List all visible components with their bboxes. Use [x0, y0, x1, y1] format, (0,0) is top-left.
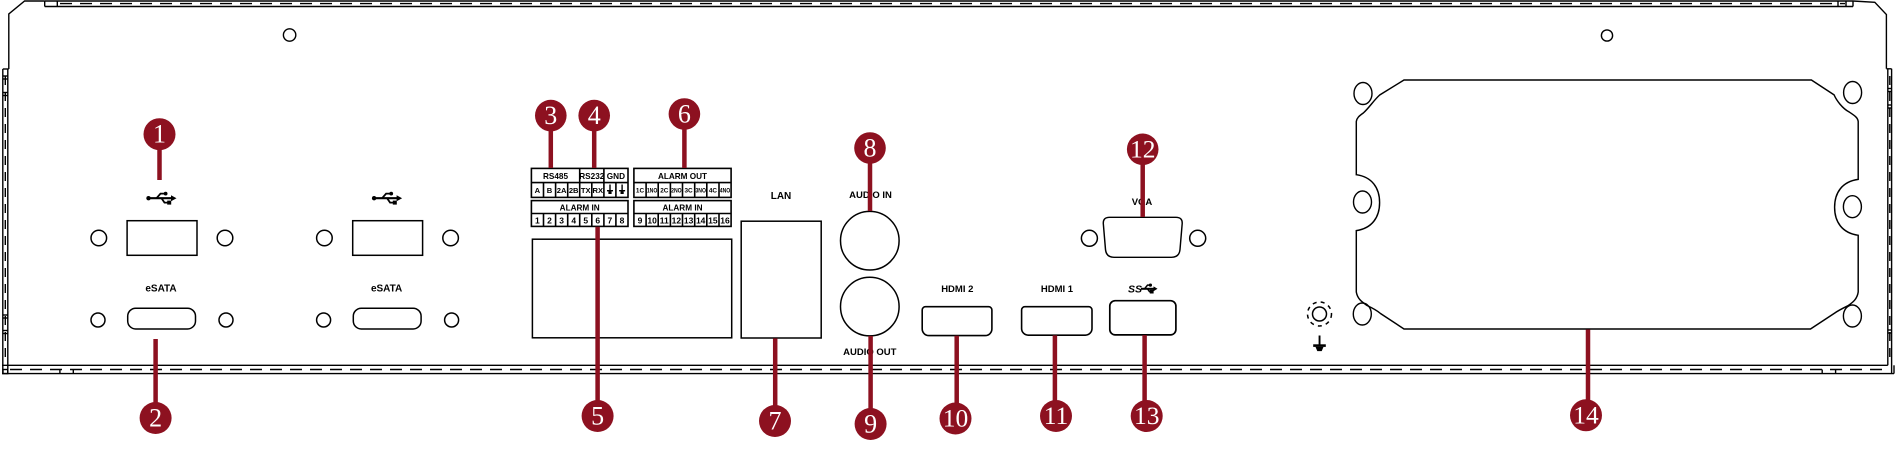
svg-text:9: 9 [638, 216, 643, 226]
svg-text:8: 8 [620, 216, 625, 226]
svg-text:6: 6 [595, 216, 600, 226]
svg-text:10: 10 [943, 404, 969, 433]
svg-text:2NO: 2NO [671, 187, 682, 194]
svg-text:3C: 3C [685, 187, 694, 194]
svg-text:7: 7 [608, 216, 613, 226]
svg-text:9: 9 [864, 409, 877, 438]
svg-text:ALARM IN: ALARM IN [560, 204, 600, 213]
svg-text:2C: 2C [660, 187, 669, 194]
svg-text:11: 11 [1044, 401, 1069, 430]
svg-text:ALARM OUT: ALARM OUT [658, 172, 707, 181]
svg-text:eSATA: eSATA [371, 284, 402, 295]
svg-text:RS232: RS232 [579, 172, 604, 181]
svg-text:SS: SS [1128, 284, 1142, 296]
svg-text:LAN: LAN [771, 191, 792, 202]
svg-text:2: 2 [149, 403, 162, 432]
svg-text:A: A [535, 186, 541, 195]
svg-text:12: 12 [1130, 134, 1156, 163]
svg-text:1NO: 1NO [647, 187, 658, 194]
svg-text:12: 12 [672, 216, 682, 226]
svg-text:1C: 1C [636, 187, 645, 194]
svg-text:14: 14 [1573, 400, 1599, 429]
svg-text:11: 11 [660, 216, 669, 226]
svg-text:TX: TX [581, 186, 591, 195]
svg-text:1: 1 [535, 216, 540, 226]
svg-text:8: 8 [864, 133, 877, 162]
svg-text:3: 3 [559, 216, 564, 226]
svg-text:ALARM IN: ALARM IN [662, 204, 702, 213]
svg-text:2B: 2B [569, 186, 579, 195]
svg-text:B: B [547, 186, 553, 195]
svg-text:10: 10 [647, 216, 657, 226]
svg-text:HDMI 2: HDMI 2 [941, 284, 973, 295]
svg-text:4NO: 4NO [720, 187, 731, 194]
svg-text:15: 15 [708, 216, 718, 226]
svg-text:6: 6 [678, 99, 691, 128]
svg-text:2: 2 [547, 216, 552, 226]
svg-text:5: 5 [591, 401, 604, 430]
svg-text:2A: 2A [557, 186, 567, 195]
svg-text:3NO: 3NO [695, 187, 706, 194]
svg-text:RX: RX [593, 186, 604, 195]
svg-text:RS485: RS485 [543, 172, 568, 181]
svg-text:4: 4 [571, 216, 576, 226]
svg-text:4: 4 [588, 101, 601, 130]
svg-text:13: 13 [684, 216, 694, 226]
svg-text:HDMI 1: HDMI 1 [1041, 284, 1074, 295]
svg-text:3: 3 [544, 101, 557, 130]
svg-text:eSATA: eSATA [145, 284, 176, 295]
svg-text:4C: 4C [709, 187, 718, 194]
svg-text:5: 5 [583, 216, 588, 226]
svg-text:14: 14 [696, 216, 706, 226]
svg-text:1: 1 [153, 120, 166, 149]
svg-text:13: 13 [1134, 401, 1160, 430]
svg-text:16: 16 [720, 216, 730, 226]
svg-text:7: 7 [769, 406, 782, 435]
svg-text:GND: GND [607, 172, 625, 181]
